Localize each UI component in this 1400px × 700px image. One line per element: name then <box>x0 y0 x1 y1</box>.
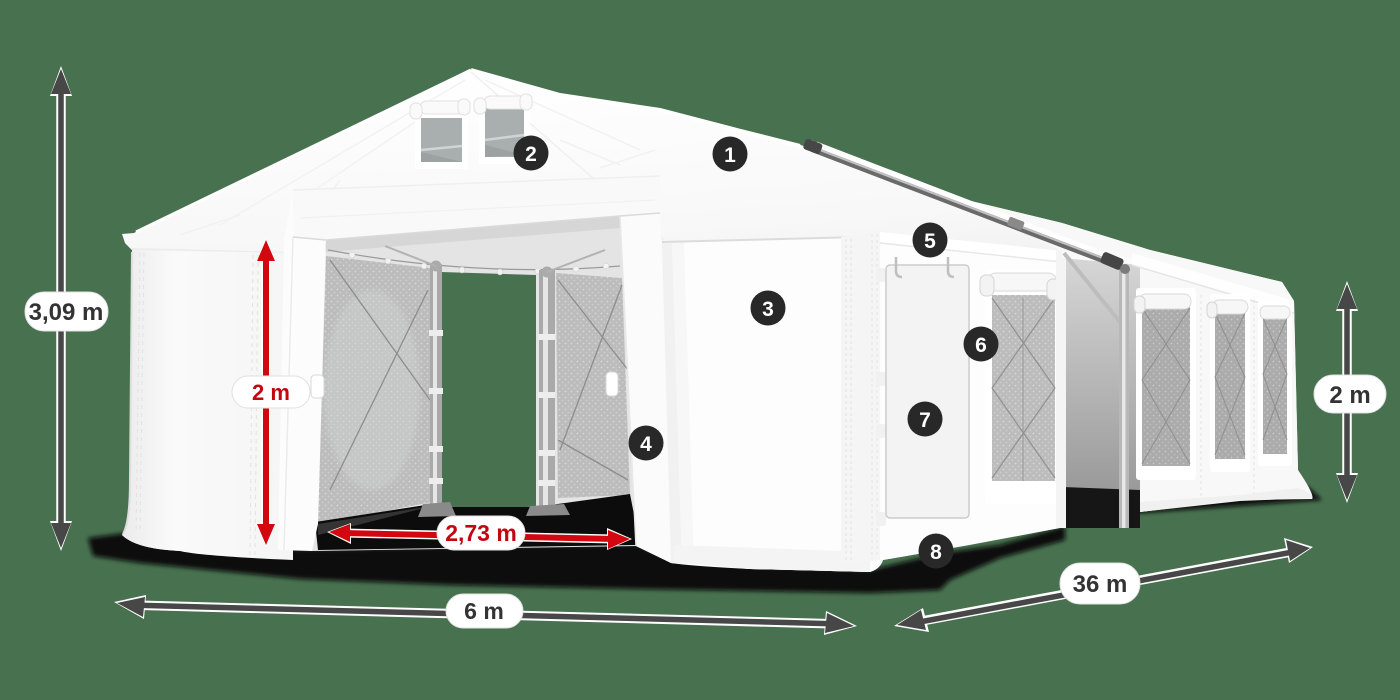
svg-text:7: 7 <box>919 409 931 432</box>
svg-text:1: 1 <box>724 144 736 167</box>
svg-text:8: 8 <box>930 541 942 564</box>
svg-text:2 m: 2 m <box>1329 382 1370 409</box>
svg-text:3,09 m: 3,09 m <box>29 299 104 326</box>
svg-text:2 m: 2 m <box>252 380 290 405</box>
svg-text:36 m: 36 m <box>1073 571 1128 598</box>
svg-text:2: 2 <box>525 143 537 166</box>
svg-text:4: 4 <box>640 433 652 456</box>
svg-text:3: 3 <box>762 298 774 321</box>
svg-text:6: 6 <box>975 334 987 357</box>
svg-text:5: 5 <box>924 230 936 253</box>
svg-text:2,73 m: 2,73 m <box>445 520 517 546</box>
svg-text:6 m: 6 m <box>464 598 504 624</box>
